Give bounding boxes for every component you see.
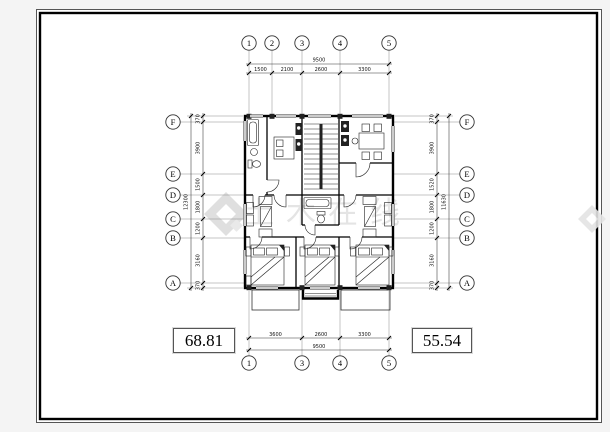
dim-top-seg-4: 3300 (358, 67, 371, 73)
grid-bubble-right-C: C (464, 214, 470, 224)
grid-bubble-right-F: F (465, 117, 470, 127)
grid-bubble-top-3: 3 (300, 38, 304, 48)
dim-left-total: 12300 (184, 194, 190, 210)
dim-top-total: 9500 (313, 58, 326, 64)
dim-left-seg-4: 1800 (196, 201, 202, 214)
area-value-left: 68.81 (185, 331, 223, 351)
dim-top-seg-1: 1500 (254, 67, 267, 73)
dim-left-seg-3: 1500 (196, 178, 202, 191)
dim-bottom-total: 9500 (313, 344, 326, 350)
dim-left-seg-5: 1200 (196, 222, 202, 235)
dim-top-seg-3: 2600 (315, 67, 328, 73)
area-value-right: 55.54 (423, 331, 461, 351)
dim-right-total: 11630 (442, 194, 448, 210)
dim-right-seg-2: 3900 (430, 142, 436, 155)
grid-bubble-top-5: 5 (387, 38, 391, 48)
grid-bubble-left-B: B (170, 233, 176, 243)
grid-bubble-right-B: B (464, 233, 470, 243)
grid-bubble-right-A: A (464, 278, 471, 288)
dim-bottom-seg-1: 3600 (269, 332, 282, 338)
area-value-left-box: 68.81 (173, 328, 235, 353)
drawing-sheet: 土木在线 9500 (0, 0, 610, 432)
grid-bubble-left-E: E (170, 169, 175, 179)
dim-right-seg-1: 370 (430, 114, 436, 124)
dim-left-seg-6: 3160 (196, 254, 202, 267)
dim-top-seg-2: 2100 (281, 67, 294, 73)
dim-right-seg-6: 3160 (430, 254, 436, 267)
grid-bubble-left-A: A (170, 278, 177, 288)
grid-bubble-left-F: F (171, 117, 176, 127)
dim-left-seg-1: 370 (196, 114, 202, 124)
dim-right-seg-5: 1200 (430, 222, 436, 235)
dim-left-seg-7: 370 (196, 281, 202, 291)
dim-bottom-seg-3: 3300 (358, 332, 371, 338)
grid-bubble-top-2: 2 (270, 38, 274, 48)
grid-bubble-bottom-1: 1 (247, 358, 251, 368)
grid-bubble-top-1: 1 (247, 38, 251, 48)
grid-bubble-left-C: C (170, 214, 176, 224)
dim-bottom-seg-2: 2600 (315, 332, 328, 338)
dim-right-seg-4: 1800 (430, 201, 436, 214)
grid-bubble-bottom-5: 5 (387, 358, 391, 368)
grid-bubble-left-D: D (170, 190, 176, 200)
dim-left-seg-2: 3900 (196, 142, 202, 155)
grid-bubble-right-D: D (464, 190, 470, 200)
dim-right-seg-3: 1520 (430, 178, 436, 191)
grid-bubble-right-E: E (464, 169, 469, 179)
dim-right-seg-7: 370 (430, 281, 436, 291)
area-value-right-box: 55.54 (412, 328, 472, 353)
grid-bubble-bottom-3: 3 (300, 358, 304, 368)
